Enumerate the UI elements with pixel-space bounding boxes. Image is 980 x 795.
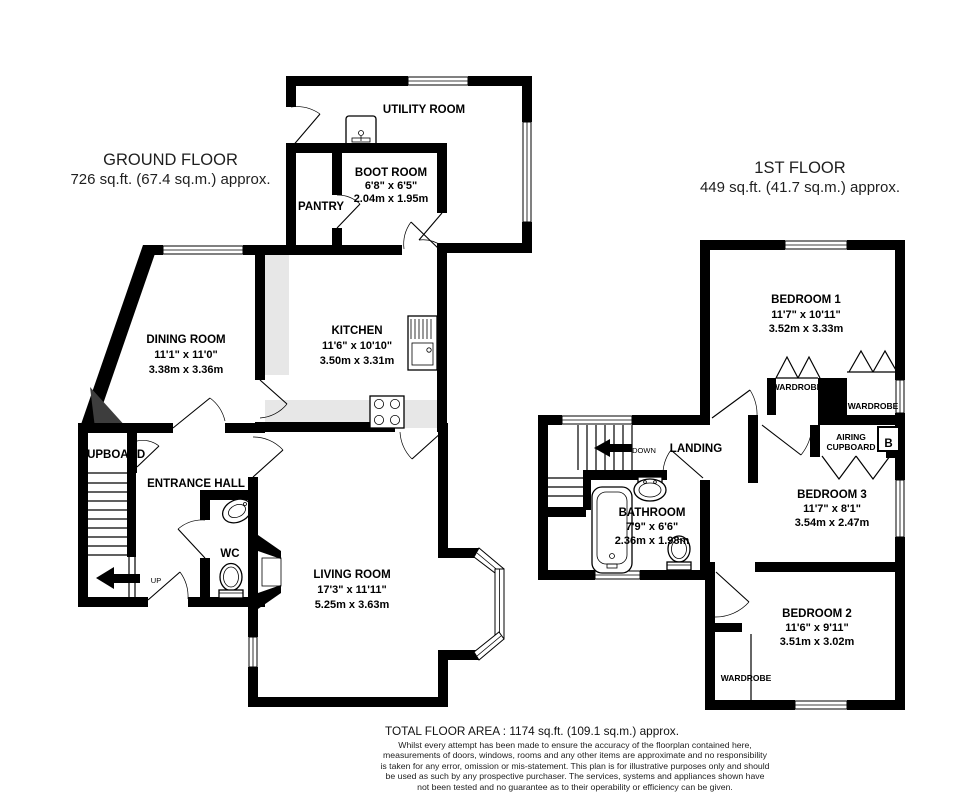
down-arrow-icon bbox=[594, 439, 632, 457]
wardrobe-right-label: WARDROBE bbox=[848, 401, 899, 411]
boiler-label: B bbox=[884, 438, 892, 450]
dining-to-hall-door bbox=[173, 398, 225, 428]
up-label: UP bbox=[151, 576, 161, 585]
bedroom1-imperial: 11'7" x 10'11" bbox=[771, 309, 841, 321]
wc-door bbox=[178, 520, 205, 558]
floorplan-drawing: UTILITY ROOM BOOT ROOM 6'8" x 6'5" 2.04m… bbox=[0, 0, 980, 795]
kitchen-to-living-door bbox=[400, 432, 442, 459]
pantry-label: PANTRY bbox=[298, 201, 344, 213]
wardrobe-left-label: WARDROBE bbox=[772, 382, 823, 392]
utility-door bbox=[291, 107, 320, 148]
entrance-hall-label: ENTRANCE HALL bbox=[147, 478, 245, 490]
cupboard-label: CUPBOARD bbox=[79, 449, 145, 461]
bedroom2-wardrobe-walls bbox=[712, 623, 751, 700]
landing-label: LANDING bbox=[670, 443, 722, 455]
boot-room-metric: 2.04m x 1.95m bbox=[354, 193, 429, 205]
bedroom3-metric: 3.54m x 2.47m bbox=[795, 517, 870, 529]
kitchen-label: KITCHEN bbox=[331, 325, 382, 337]
up-arrow-icon bbox=[96, 567, 140, 589]
utility-room-walls bbox=[286, 76, 532, 253]
ground-floor-plan: UTILITY ROOM BOOT ROOM 6'8" x 6'5" 2.04m… bbox=[78, 76, 532, 707]
wc-label: WC bbox=[220, 548, 239, 560]
utility-room-label: UTILITY ROOM bbox=[383, 104, 465, 116]
total-floor-area: TOTAL FLOOR AREA : 1174 sq.ft. (109.1 sq… bbox=[230, 724, 834, 738]
bedroom2-door bbox=[715, 572, 749, 617]
bedroom2-label: BEDROOM 2 bbox=[782, 608, 852, 620]
hob-icon bbox=[370, 396, 404, 428]
fireplace-icon bbox=[258, 535, 281, 609]
bedroom3-imperial: 11'7" x 8'1" bbox=[803, 503, 861, 515]
floorplan-page: GROUND FLOOR 726 sq.ft. (67.4 sq.m.) app… bbox=[0, 0, 980, 795]
bedroom1-label: BEDROOM 1 bbox=[771, 294, 841, 306]
bedroom2-imperial: 11'6" x 9'11" bbox=[785, 622, 848, 634]
bay-window bbox=[474, 548, 504, 660]
disclaimer: Whilst every attempt has been made to en… bbox=[380, 740, 770, 795]
bedroom3-label: BEDROOM 3 bbox=[797, 489, 867, 501]
utility-sink-icon bbox=[346, 116, 376, 146]
bathroom-basin-icon bbox=[634, 477, 666, 501]
wardrobe-bedroom2-label: WARDROBE bbox=[721, 673, 772, 683]
living-room-label: LIVING ROOM bbox=[313, 569, 390, 581]
living-room-imperial: 17'3" x 11'11" bbox=[317, 584, 387, 596]
airing-cupboard-label-1: AIRING bbox=[836, 432, 866, 442]
dining-room-imperial: 11'1" x 11'0" bbox=[154, 349, 217, 361]
bedroom1-metric: 3.52m x 3.33m bbox=[769, 323, 844, 335]
dining-room-metric: 3.38m x 3.36m bbox=[149, 364, 224, 376]
living-room-door bbox=[253, 437, 283, 477]
dining-room-label: DINING ROOM bbox=[146, 334, 225, 346]
kitchen-metric: 3.50m x 3.31m bbox=[320, 355, 395, 367]
kitchen-sink-icon bbox=[408, 316, 437, 370]
wc-toilet-icon bbox=[219, 564, 243, 599]
living-room-metric: 5.25m x 3.63m bbox=[315, 599, 390, 611]
down-label: DOWN bbox=[632, 446, 656, 455]
first-floor-plan: BEDROOM 1 11'7" x 10'11" 3.52m x 3.33m W… bbox=[538, 240, 905, 710]
disclaimer-text: Whilst every attempt has been made to en… bbox=[380, 740, 769, 792]
boot-room-imperial: 6'8" x 6'5" bbox=[365, 180, 417, 192]
bedroom-divider-walls bbox=[705, 562, 905, 572]
bedroom1-door bbox=[712, 390, 757, 418]
living-room-walls bbox=[248, 423, 480, 707]
bedroom3-door bbox=[762, 425, 812, 455]
bedroom2-metric: 3.51m x 3.02m bbox=[780, 636, 855, 648]
bathroom-label: BATHROOM bbox=[619, 507, 686, 519]
bathroom-imperial: 7'9" x 6'6" bbox=[626, 521, 678, 533]
bathroom-metric: 2.36m x 1.98m bbox=[615, 535, 690, 547]
kitchen-imperial: 11'6" x 10'10" bbox=[322, 340, 392, 352]
airing-cupboard-label-2: CUPBOARD bbox=[826, 442, 875, 452]
boot-room-label: BOOT ROOM bbox=[355, 167, 427, 179]
